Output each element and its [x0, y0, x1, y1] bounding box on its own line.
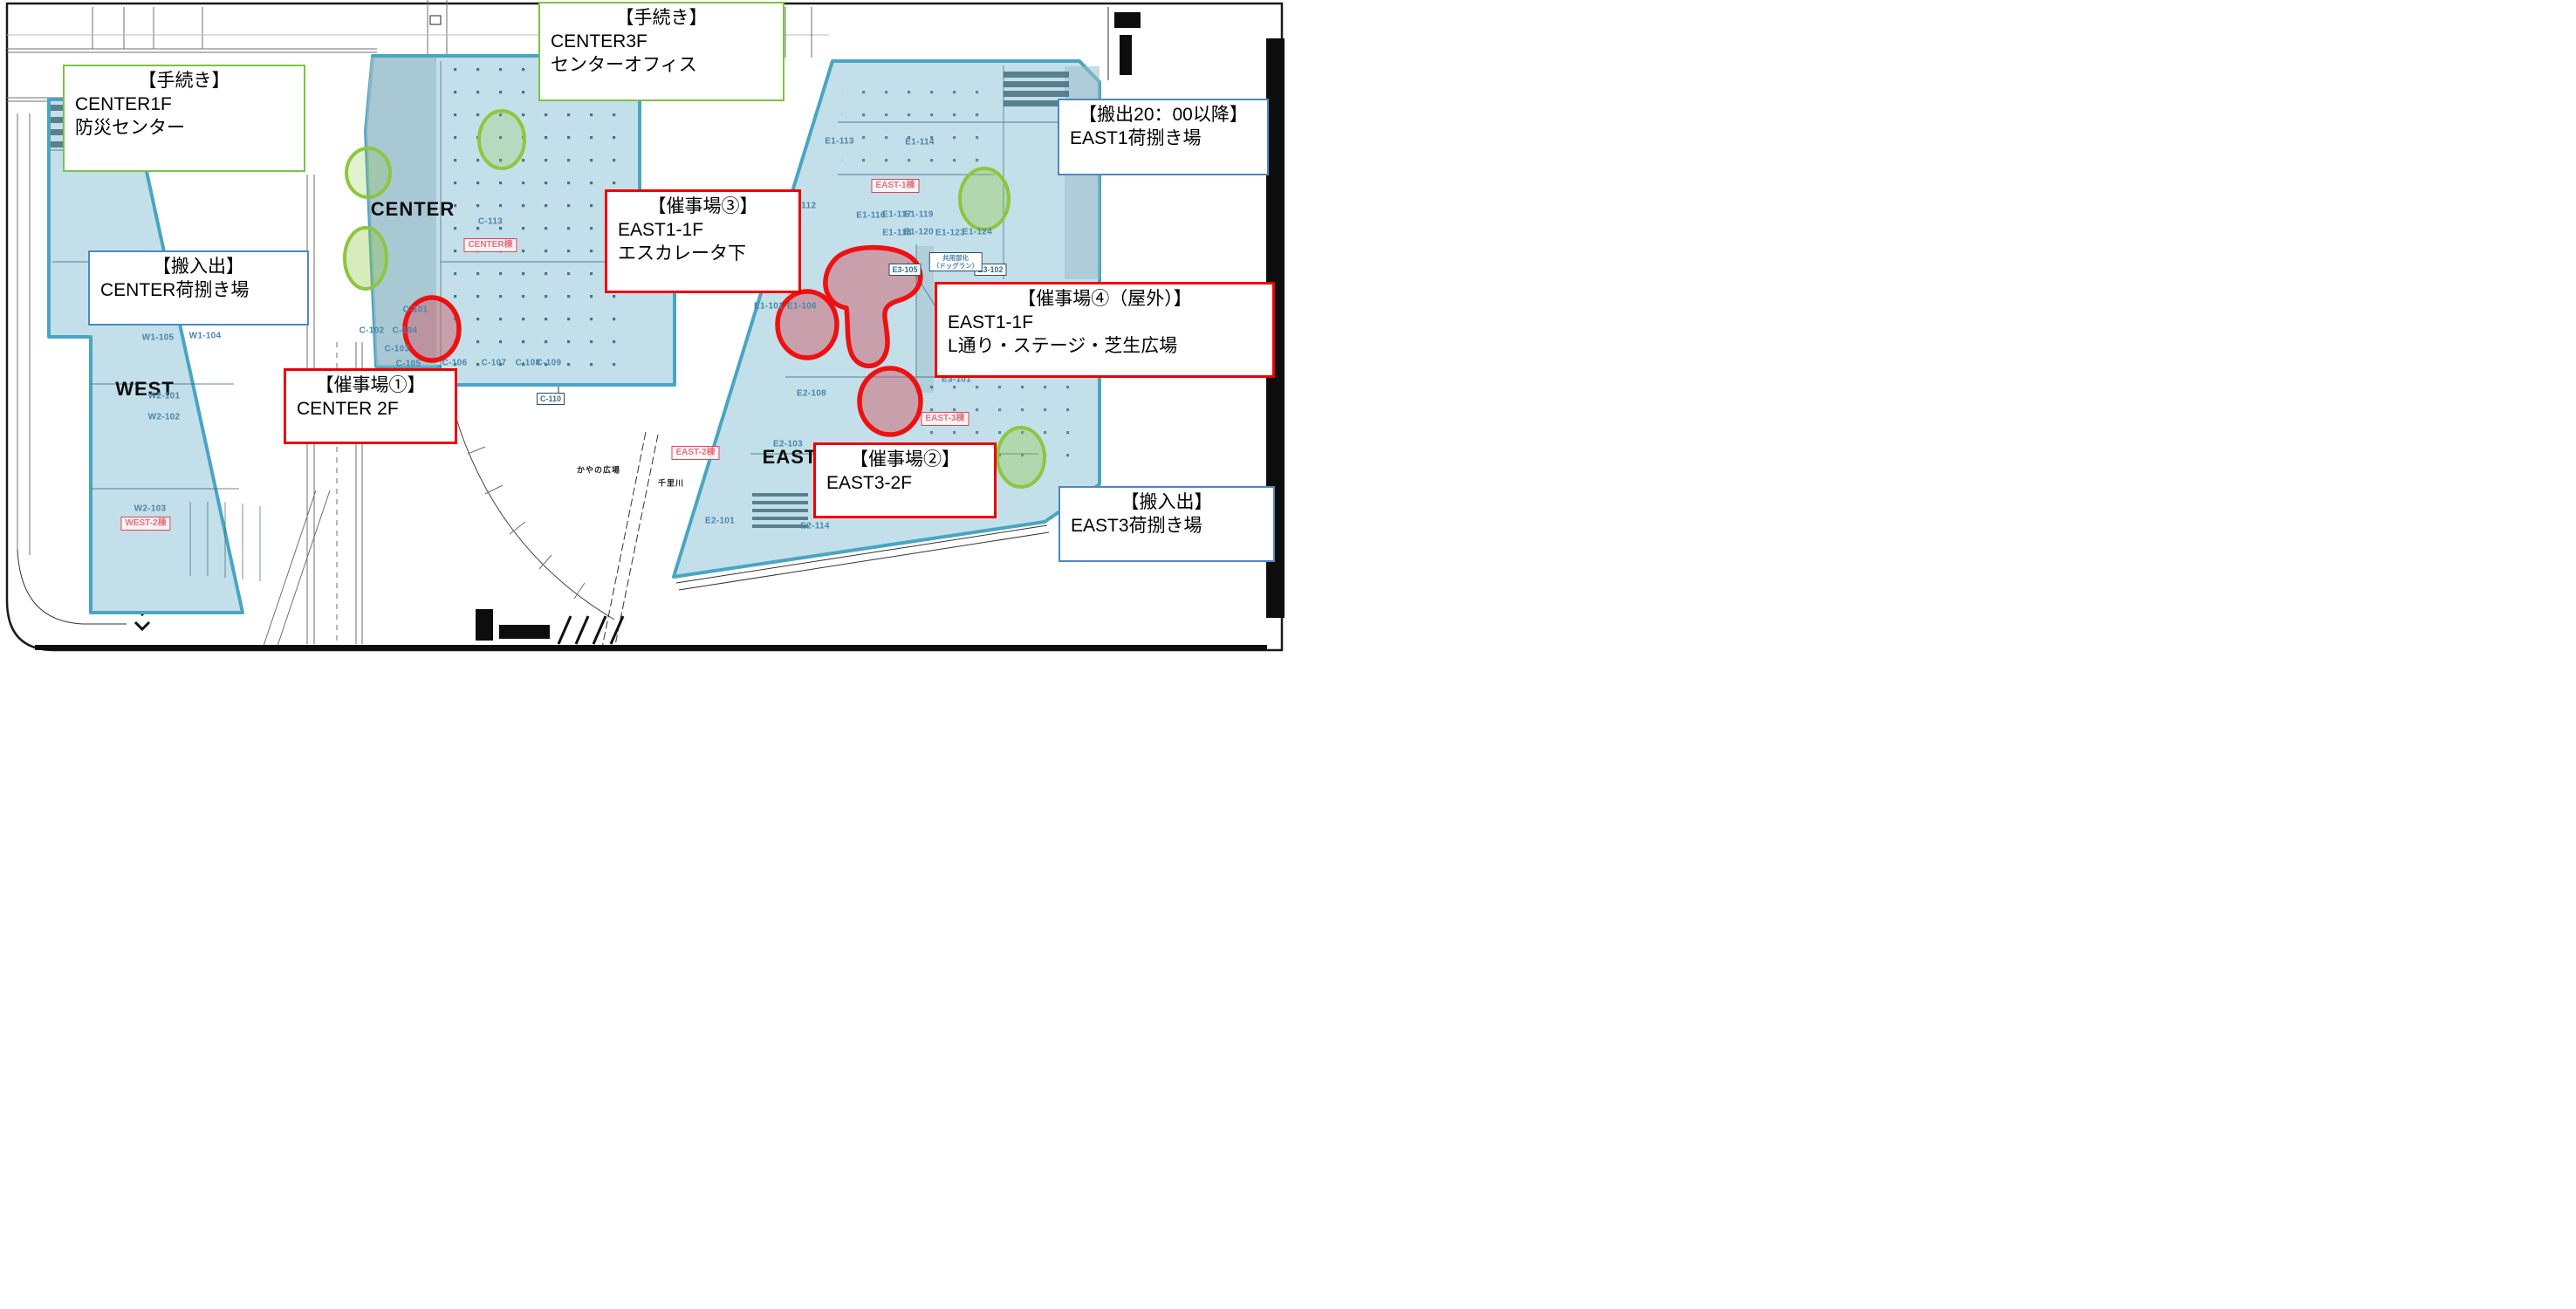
senri-river-label: 千里川 — [658, 477, 684, 489]
callout-venue4: 【催事場④（屋外）】 EAST1-1F L通り・ステージ・芝生広場 — [935, 282, 1275, 378]
tag-east1-building: EAST-1棟 — [871, 179, 919, 193]
marker-green-east1-dock — [960, 168, 1009, 230]
callout-venue2: 【催事場②】 EAST3-2F — [813, 442, 997, 518]
room-label-e1-106: E1-106 — [787, 302, 817, 312]
room-label-e3-105: E3-105 — [888, 264, 921, 276]
callout-venue3: 【催事場③】 EAST1-1F エスカレータ下 — [605, 189, 801, 293]
callout-line: CENTER3F — [540, 31, 783, 54]
room-label-c105: C-105 — [396, 360, 421, 369]
room-label-c110: C-110 — [537, 393, 565, 405]
callout-line: L通り・ステージ・芝生広場 — [937, 335, 1272, 359]
building-west-shape — [49, 99, 243, 613]
marker-green-center-northwest — [346, 148, 390, 197]
room-label-c109: C-109 — [537, 359, 562, 368]
tag-center-building: CENTER棟 — [463, 238, 517, 252]
room-label-c113: C-113 — [478, 217, 503, 227]
room-label-e1-114: E1-114 — [905, 138, 935, 147]
bottom-hatch — [558, 616, 623, 644]
tag-east2-building: EAST-2棟 — [671, 446, 719, 460]
room-label-e1-124: E1-124 — [963, 228, 992, 237]
callout-title: 【催事場①】 — [286, 371, 455, 398]
callout-carryinout-center: 【搬入出】 CENTER荷捌き場 — [88, 250, 309, 326]
callout-title: 【手続き】 — [65, 66, 304, 93]
callout-line: CENTER1F — [65, 93, 304, 117]
room-label-c104: C-104 — [393, 326, 418, 336]
callout-title: 【搬入出】 — [90, 252, 307, 279]
room-label-w1-105: W1-105 — [142, 333, 175, 343]
site-map: CENTER WEST EAST CENTER棟 EAST-1棟 EAST-2棟… — [0, 0, 1288, 654]
callout-line: 防災センター — [65, 117, 304, 140]
callout-line: センターオフィス — [540, 54, 783, 78]
kayano-hiroba-label: かやの広場 — [577, 464, 620, 476]
building-label-east: EAST — [763, 446, 818, 469]
room-label-e2-103: E2-103 — [773, 440, 803, 449]
callout-title: 【催事場②】 — [816, 445, 994, 472]
room-label-w2-102: W2-102 — [148, 413, 181, 422]
room-label-e2-108: E2-108 — [797, 389, 826, 399]
marker-green-east3-dock — [997, 428, 1045, 487]
room-label-c106: C-106 — [442, 359, 468, 368]
callout-title: 【搬出20：00以降】 — [1059, 100, 1267, 127]
room-label-e1-101: E1-101 — [754, 302, 784, 312]
room-label-c102: C-102 — [360, 326, 385, 336]
shared-dogrun-line2: （ドッグラン） — [933, 262, 979, 270]
callout-carryout-east1: 【搬出20：00以降】 EAST1荷捌き場 — [1058, 99, 1269, 175]
room-label-e1-123: E1-123 — [935, 229, 965, 238]
bottom-black-bar — [35, 645, 1267, 650]
room-label-w2-103: W2-103 — [134, 504, 167, 514]
callout-line: EAST1-1F — [607, 219, 798, 243]
room-label-e1-113: E1-113 — [825, 137, 854, 147]
room-label-e2-101: E2-101 — [705, 517, 735, 526]
tag-west2-building: WEST-2棟 — [120, 517, 170, 531]
building-label-center: CENTER — [371, 198, 455, 221]
tag-east3-building: EAST-3棟 — [921, 412, 969, 426]
callout-procedure-center3f: 【手続き】 CENTER3F センターオフィス — [538, 2, 784, 101]
callout-line: EAST1荷捌き場 — [1059, 127, 1267, 151]
callout-title: 【催事場③】 — [607, 192, 798, 219]
callout-venue1: 【催事場①】 CENTER 2F — [284, 368, 457, 444]
callout-line: CENTER 2F — [286, 398, 455, 421]
callout-line: EAST1-1F — [937, 312, 1272, 335]
room-label-c101: C-101 — [403, 305, 428, 315]
room-label-w1-104: W1-104 — [189, 332, 222, 341]
room-label-e1-116: E1-116 — [856, 211, 886, 221]
callout-line: EAST3荷捌き場 — [1060, 515, 1273, 538]
callout-title: 【催事場④（屋外）】 — [937, 284, 1272, 312]
callout-title: 【搬入出】 — [1060, 488, 1273, 515]
room-label-e1-119: E1-119 — [904, 210, 934, 220]
callout-title: 【手続き】 — [540, 3, 783, 31]
callout-procedure-center1f: 【手続き】 CENTER1F 防災センター — [63, 65, 305, 172]
room-label-e2-114: E2-114 — [800, 522, 830, 531]
marker-green-center-north — [479, 111, 524, 168]
room-label-c107: C-107 — [482, 359, 507, 368]
marker-green-center-dock — [345, 228, 387, 289]
callout-line: EAST3-2F — [816, 472, 994, 496]
room-label-c103: C-103 — [385, 345, 410, 354]
room-label-e1-120: E1-120 — [904, 228, 934, 237]
marker-venue2-circle — [860, 368, 921, 435]
callout-line: エスカレータ下 — [607, 243, 798, 266]
shared-dogrun-line1: 共用部化 — [942, 254, 969, 262]
shared-dogrun-label: 共用部化 （ドッグラン） — [929, 252, 983, 271]
room-label-w2-101: W2-101 — [148, 392, 181, 401]
callout-line: CENTER荷捌き場 — [90, 279, 307, 303]
callout-carryinout-east3: 【搬入出】 EAST3荷捌き場 — [1058, 486, 1275, 562]
